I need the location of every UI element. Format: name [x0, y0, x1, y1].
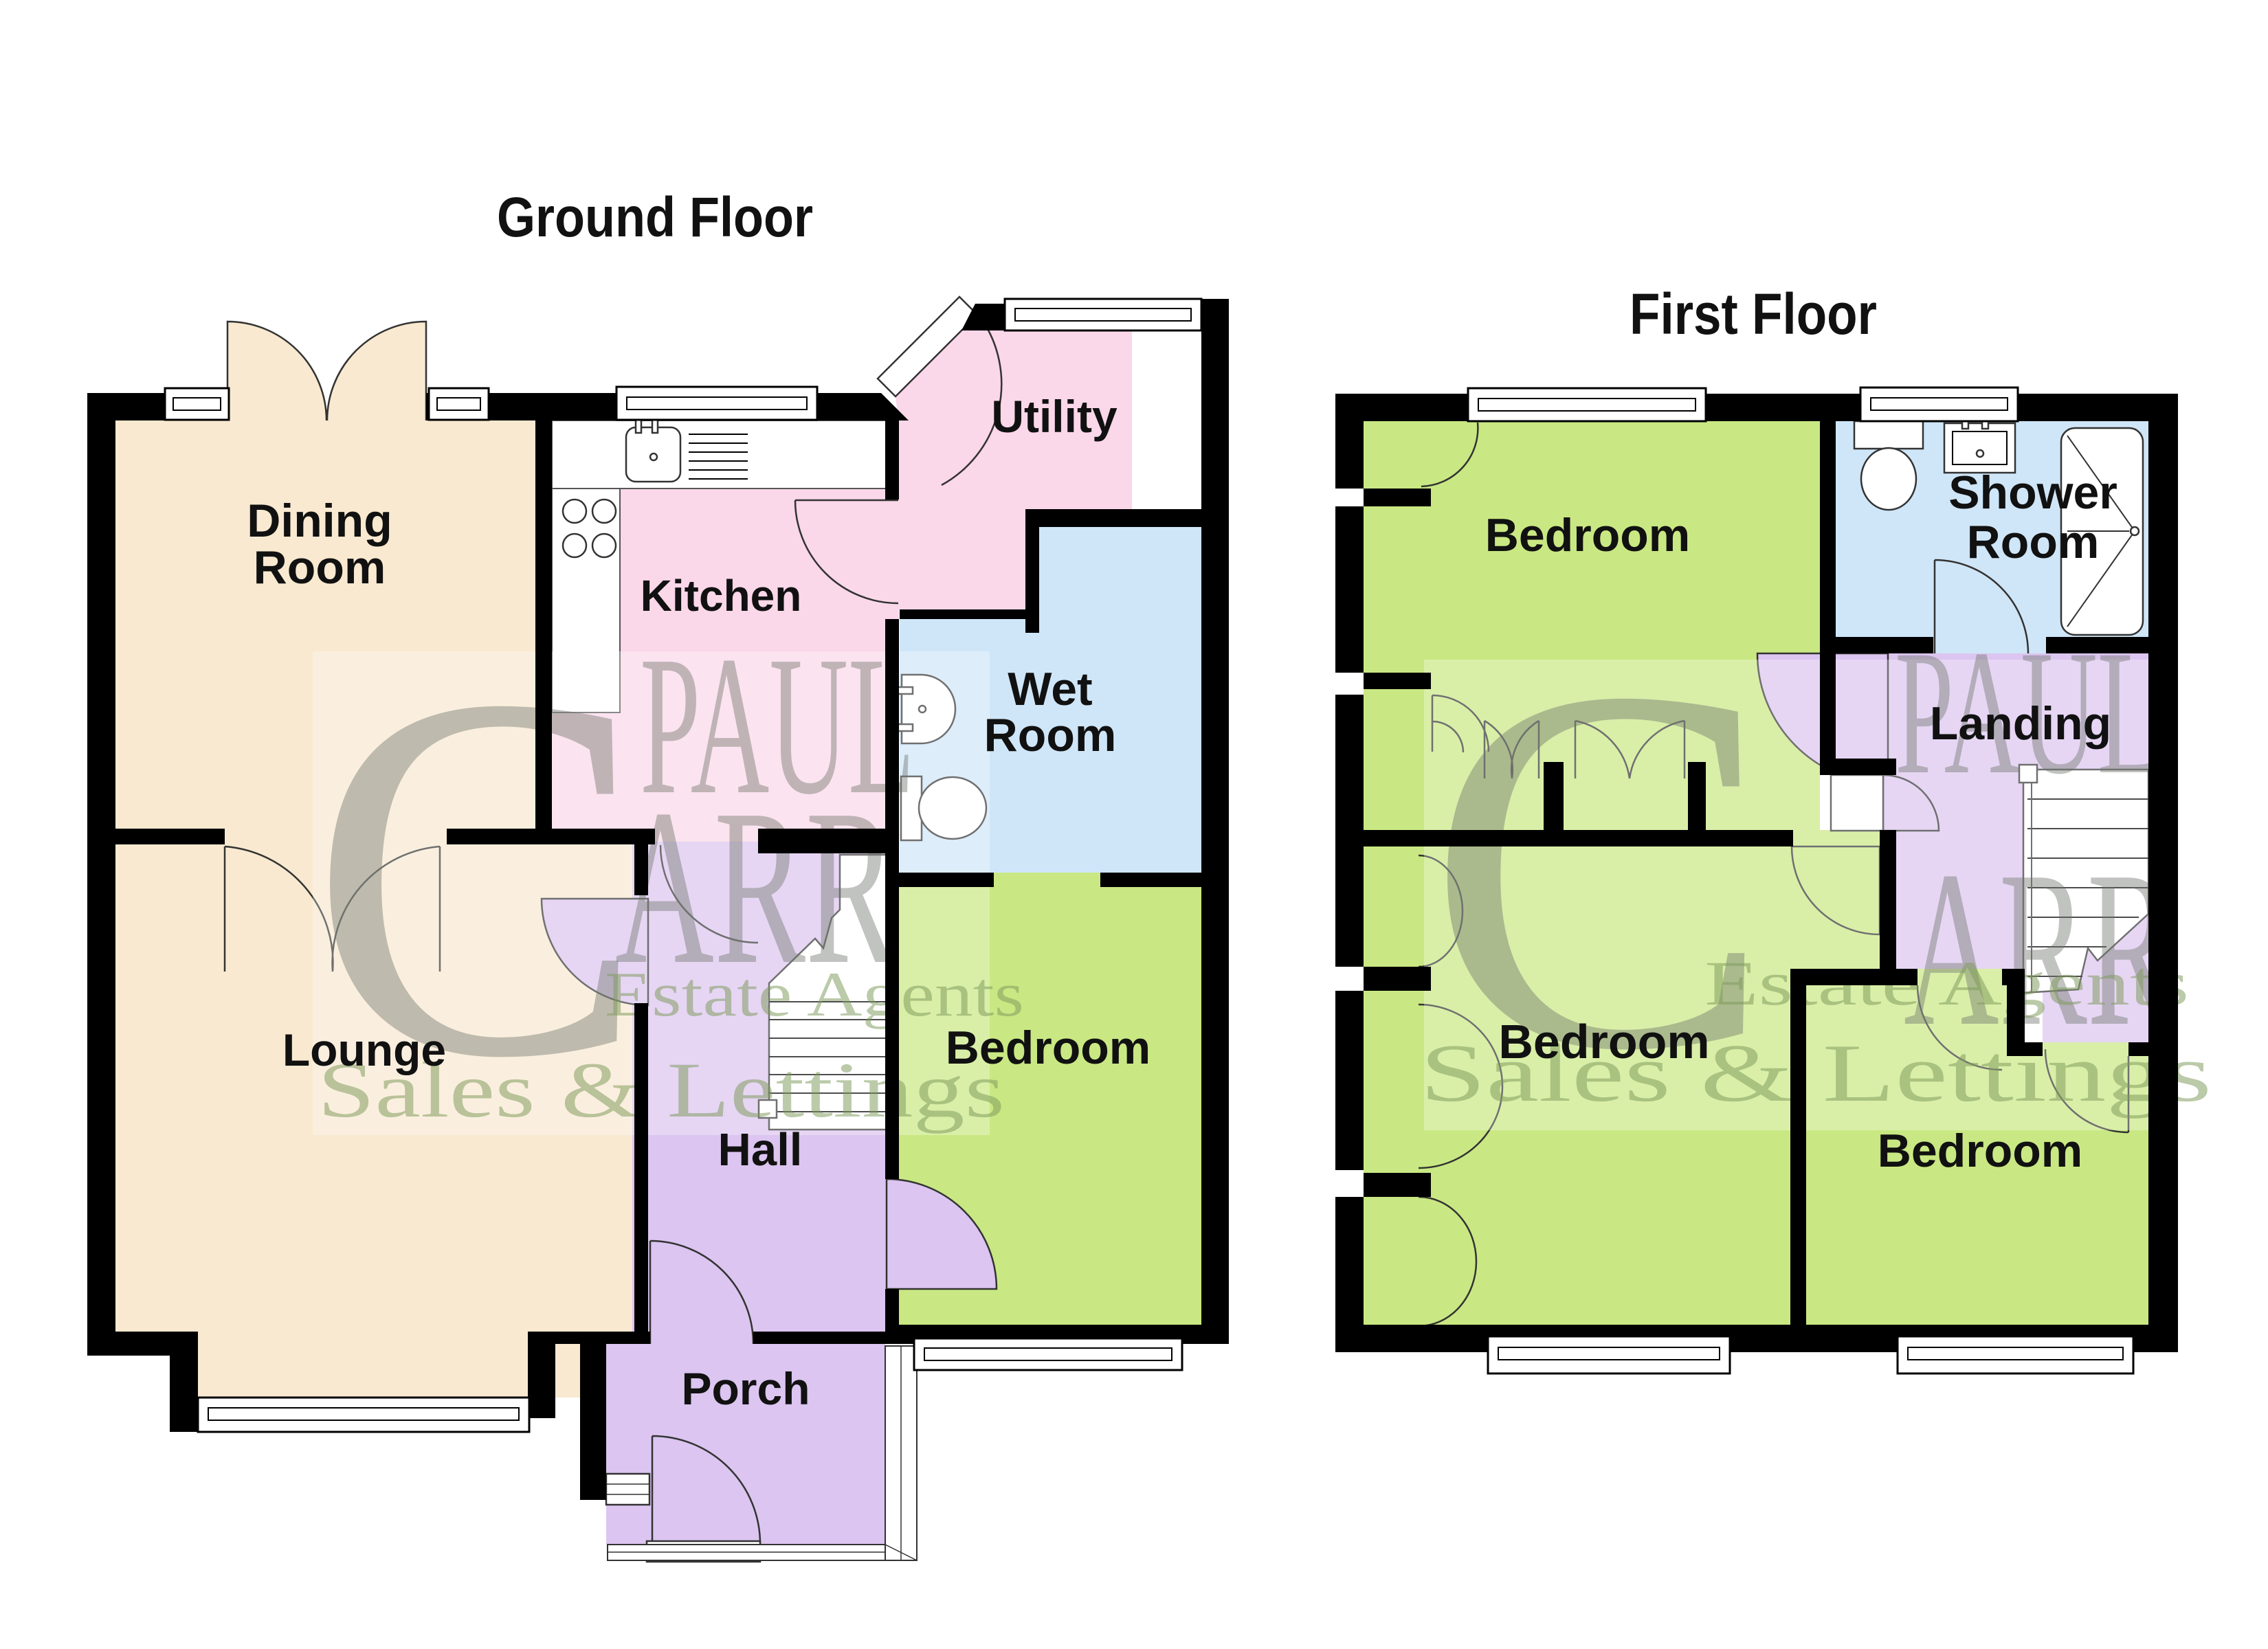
svg-text:Bedroom: Bedroom	[946, 1022, 1150, 1074]
svg-text:Room: Room	[254, 541, 386, 594]
svg-text:Bedroom: Bedroom	[1878, 1125, 2082, 1177]
svg-text:Dining: Dining	[247, 495, 392, 547]
svg-text:Bedroom: Bedroom	[1485, 509, 1690, 561]
svg-text:Room: Room	[984, 709, 1117, 761]
svg-text:Kitchen: Kitchen	[641, 571, 802, 620]
svg-text:Landing: Landing	[1930, 697, 2111, 750]
svg-text:Porch: Porch	[681, 1363, 810, 1414]
svg-text:Ground Floor: Ground Floor	[497, 186, 813, 249]
svg-text:Hall: Hall	[718, 1124, 803, 1176]
svg-text:Wet: Wet	[1008, 663, 1092, 715]
svg-text:Estate Agents: Estate Agents	[1704, 948, 2189, 1018]
svg-text:Room: Room	[1967, 516, 2100, 568]
svg-text:Shower: Shower	[1948, 467, 2117, 519]
svg-text:Bedroom: Bedroom	[1498, 1015, 1709, 1068]
svg-text:Lounge: Lounge	[282, 1024, 446, 1075]
svg-text:First Floor: First Floor	[1630, 282, 1877, 346]
svg-text:Estate Agents: Estate Agents	[605, 959, 1024, 1029]
svg-text:Utility: Utility	[991, 391, 1118, 442]
